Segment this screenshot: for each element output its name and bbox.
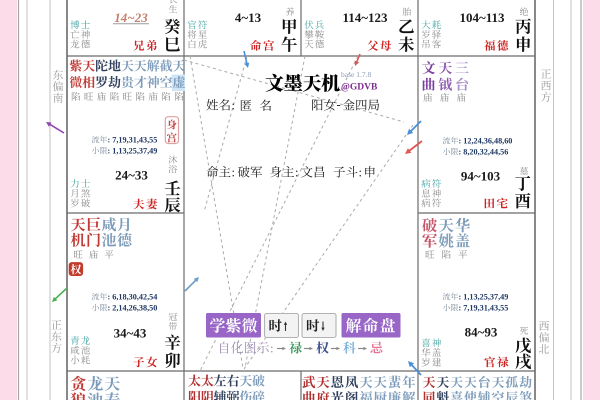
- svg-text:: 6,18,30,42,54: : 6,18,30,42,54: [108, 293, 158, 302]
- svg-text::: :: [295, 166, 298, 180]
- svg-text:: 7,19,31,43,55: : 7,19,31,43,55: [459, 304, 509, 313]
- svg-text::: :: [270, 341, 274, 356]
- svg-text:94~103: 94~103: [461, 169, 501, 184]
- svg-text:104~113: 104~113: [459, 10, 505, 25]
- svg-text:34~43: 34~43: [114, 326, 147, 341]
- svg-text:84~93: 84~93: [465, 325, 498, 340]
- svg-text::: :: [359, 166, 362, 180]
- svg-text::: :: [232, 166, 235, 180]
- svg-text:14~23: 14~23: [114, 10, 148, 25]
- svg-text:base 1.7.8: base 1.7.8: [341, 70, 371, 79]
- svg-text:: 12,24,36,48,60: : 12,24,36,48,60: [459, 137, 513, 146]
- svg-text:: 7,19,31,43,55: : 7,19,31,43,55: [108, 136, 158, 145]
- svg-text:: 2,14,26,38,50: : 2,14,26,38,50: [108, 304, 158, 313]
- svg-text:@GDVB: @GDVB: [341, 83, 378, 93]
- svg-text:24~33: 24~33: [115, 168, 148, 183]
- svg-text:: 1,13,25,37,49: : 1,13,25,37,49: [459, 293, 509, 302]
- svg-text:-: -: [337, 98, 341, 112]
- svg-text::: :: [232, 99, 235, 113]
- svg-text:: 1,13,25,37,49: : 1,13,25,37,49: [108, 147, 158, 156]
- svg-text:: 8,20,32,44,56: : 8,20,32,44,56: [459, 148, 509, 157]
- svg-text:114~123: 114~123: [342, 10, 388, 25]
- svg-text:4~13: 4~13: [235, 10, 262, 25]
